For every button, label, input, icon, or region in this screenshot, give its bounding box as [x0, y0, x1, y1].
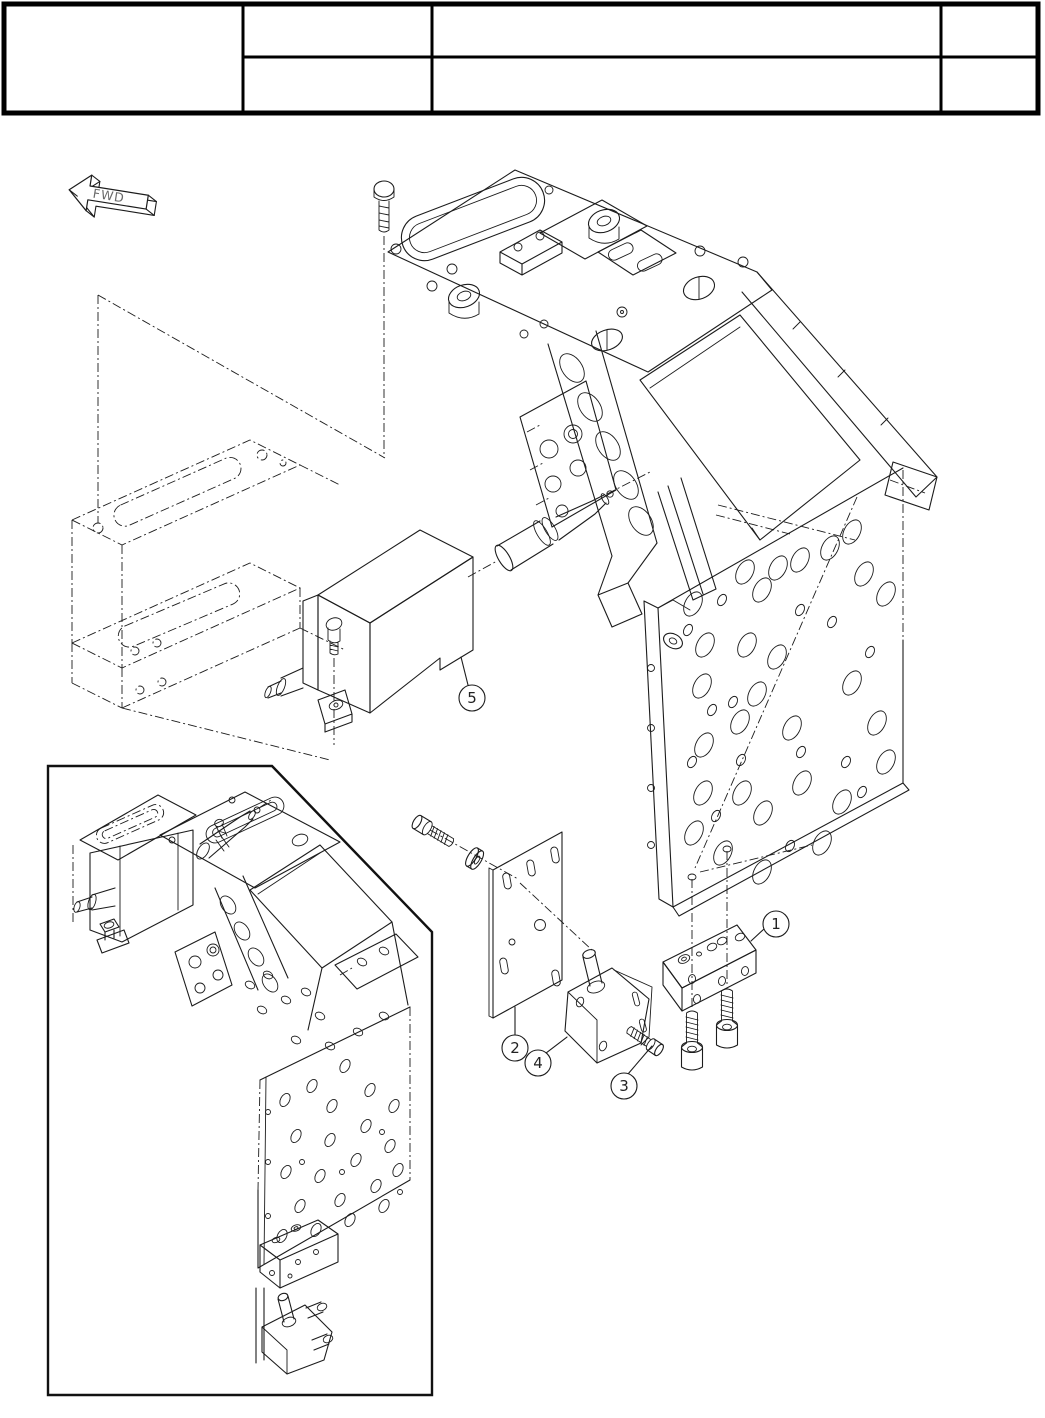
callout-4: 4 — [525, 1037, 567, 1076]
bracket-part-4 — [565, 948, 652, 1063]
manual-page: FWD — [0, 0, 1045, 1418]
inset-detail-box — [48, 766, 432, 1395]
inset-sensor-assembly — [73, 795, 271, 953]
callout-label-1: 1 — [771, 915, 781, 933]
callouts: 12345 — [459, 657, 789, 1099]
callout-label-3: 3 — [619, 1077, 629, 1095]
exploded-view-diagram: FWD — [0, 0, 1045, 1418]
callout-5: 5 — [459, 657, 485, 711]
callout-label-4: 4 — [533, 1054, 543, 1072]
washer — [463, 846, 486, 871]
callout-label-5: 5 — [467, 689, 477, 707]
callout-label-2: 2 — [510, 1039, 520, 1057]
sensor-part-5 — [263, 530, 473, 745]
inset-block-and-bracket — [256, 1220, 338, 1374]
connector-plug — [468, 472, 650, 577]
top-screw — [374, 181, 394, 232]
plate-holes — [680, 517, 899, 887]
inset-plate — [258, 1007, 410, 1268]
title-block — [4, 4, 1038, 113]
callout-2: 2 — [502, 1007, 528, 1061]
block-part-1 — [663, 925, 756, 1011]
mount-plate-part-2 — [489, 832, 562, 1018]
screw-part-3 — [624, 1024, 665, 1057]
cap-screws — [682, 851, 738, 1070]
fwd-label: FWD — [92, 186, 126, 206]
flat-screw-and-washer — [410, 814, 592, 950]
callout-1: 1 — [751, 911, 789, 941]
fwd-arrow-icon: FWD — [66, 172, 159, 226]
inset-frame — [160, 792, 418, 1051]
phantom-axis-lines — [98, 236, 385, 523]
